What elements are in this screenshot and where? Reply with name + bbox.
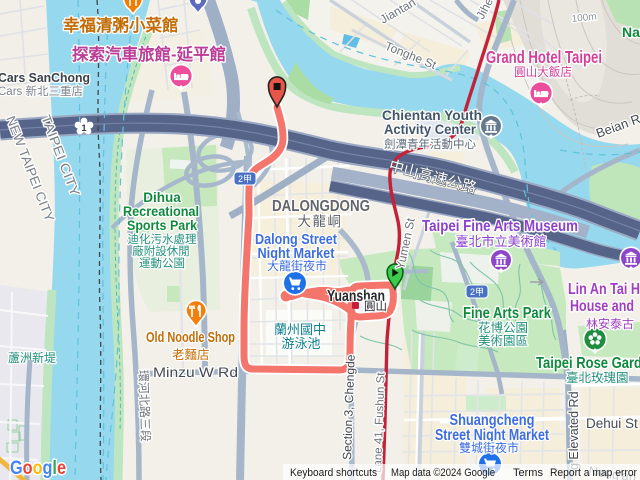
- svg-text:Report a map error: Report a map error: [550, 467, 637, 479]
- svg-text:圓山: 圓山: [364, 300, 387, 313]
- svg-text:臺北市立美術館: 臺北市立美術館: [455, 234, 546, 249]
- svg-text:大龍峒: 大龍峒: [298, 213, 343, 229]
- svg-text:g Elevated Rd: g Elevated Rd: [567, 391, 581, 470]
- svg-text:環河北路三段: 環河北路三段: [136, 370, 154, 442]
- svg-text:Sports Park: Sports Park: [127, 218, 197, 233]
- svg-text:雙城街夜市: 雙城街夜市: [459, 440, 519, 455]
- svg-text:幸福清粥小菜館: 幸福清粥小菜館: [63, 15, 179, 35]
- svg-text:劍潭青年活動中心: 劍潭青年活動中心: [384, 137, 476, 151]
- svg-text:House and: House and: [570, 298, 634, 315]
- svg-text:花博公園: 花博公園: [478, 320, 528, 335]
- svg-text:Keyboard shortcuts: Keyboard shortcuts: [290, 467, 377, 479]
- svg-text:Activity Center: Activity Center: [384, 121, 477, 137]
- svg-text:臺北玫瑰園: 臺北玫瑰園: [566, 370, 629, 385]
- svg-text:Minzu W Rd: Minzu W Rd: [153, 365, 238, 380]
- svg-text:Cars SanChong: Cars SanChong: [0, 70, 90, 85]
- svg-text:Terms: Terms: [513, 467, 543, 479]
- svg-text:Dehui St: Dehui St: [586, 416, 638, 431]
- svg-text:Fine Arts Park: Fine Arts Park: [463, 305, 551, 322]
- svg-text:Cars 新北三重店: Cars 新北三重店: [0, 84, 83, 98]
- svg-text:Nat: Nat: [622, 24, 640, 40]
- svg-text:老麵店: 老麵店: [172, 348, 210, 362]
- svg-text:2甲: 2甲: [238, 174, 252, 184]
- svg-text:Old Noodle Shop: Old Noodle Shop: [146, 330, 235, 346]
- svg-text:Lin An Tai H: Lin An Tai H: [568, 281, 640, 298]
- svg-text:Taipei Fine Arts Museum: Taipei Fine Arts Museum: [422, 218, 578, 235]
- svg-text:Recreational: Recreational: [123, 204, 199, 219]
- svg-text:迪化污水處理: 迪化污水處理: [128, 232, 197, 246]
- svg-text:DALONGDONG: DALONGDONG: [272, 198, 370, 215]
- svg-text:Map data ©2024 Google: Map data ©2024 Google: [391, 467, 495, 479]
- svg-text:廠附設休閒: 廠附設休閒: [132, 244, 190, 258]
- svg-text:運動公園: 運動公園: [139, 256, 185, 270]
- svg-text:美術園區: 美術園區: [478, 334, 528, 348]
- svg-text:探索汽車旅館-延平館: 探索汽車旅館-延平館: [72, 44, 226, 64]
- svg-text:游泳池: 游泳池: [281, 336, 320, 351]
- svg-text:Google: Google: [10, 458, 66, 479]
- svg-text:2甲: 2甲: [470, 287, 484, 297]
- svg-text:圓山大飯店: 圓山大飯店: [514, 64, 572, 79]
- svg-text:1: 1: [81, 123, 86, 133]
- svg-text:Taipei Rose Gard: Taipei Rose Gard: [536, 355, 640, 372]
- svg-text:大龍街夜市: 大龍街夜市: [267, 258, 327, 273]
- svg-text:林安泰古: 林安泰古: [586, 316, 634, 331]
- svg-text:Dihua: Dihua: [143, 190, 181, 205]
- svg-text:Grand Hotel Taipei: Grand Hotel Taipei: [486, 47, 602, 67]
- svg-text:蘭州國中: 蘭州國中: [274, 322, 326, 337]
